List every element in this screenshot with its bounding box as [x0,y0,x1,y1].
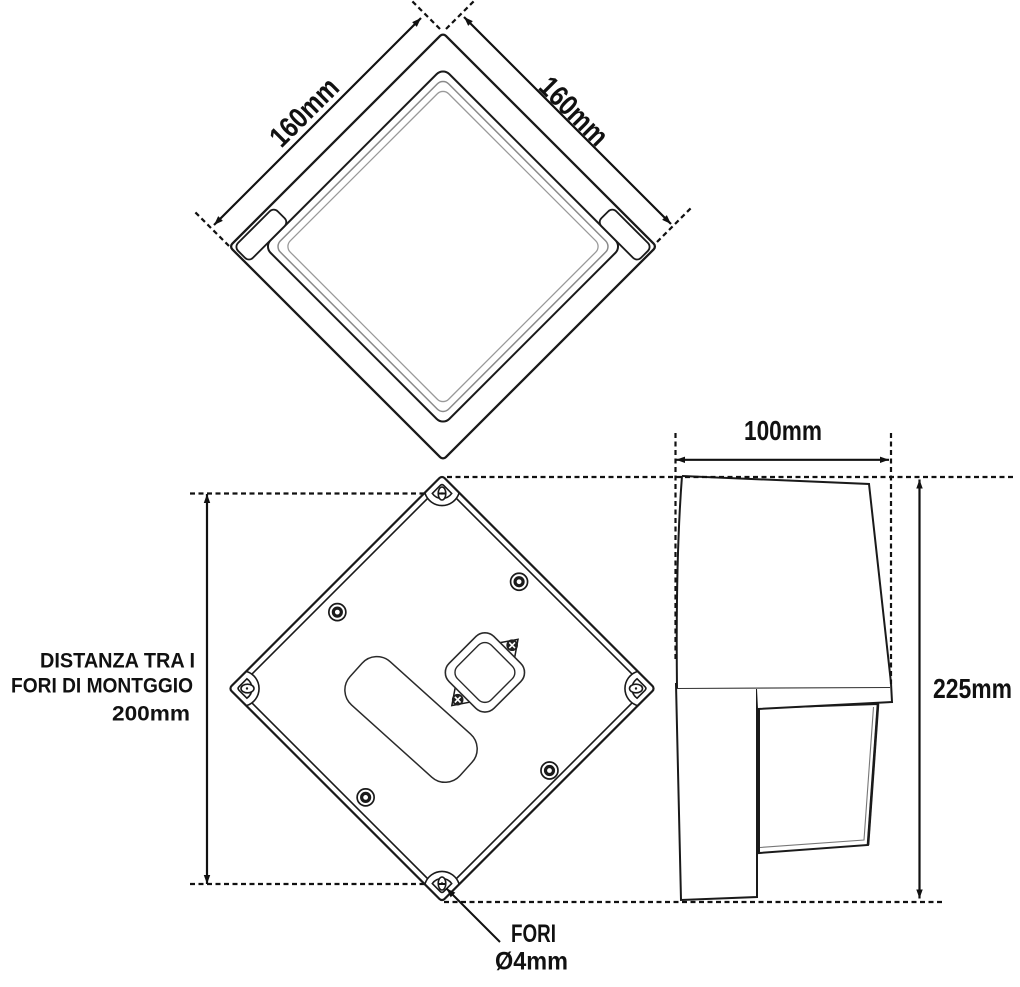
svg-text:DISTANZA TRA I: DISTANZA TRA I [40,649,195,673]
svg-text:FORI: FORI [511,920,556,948]
svg-text:200mm: 200mm [112,702,190,726]
svg-text:Ø4mm: Ø4mm [495,948,568,976]
svg-text:FORI DI MONTGGIO: FORI DI MONTGGIO [11,674,193,698]
svg-text:100mm: 100mm [744,415,822,446]
svg-text:225mm: 225mm [933,673,1012,704]
